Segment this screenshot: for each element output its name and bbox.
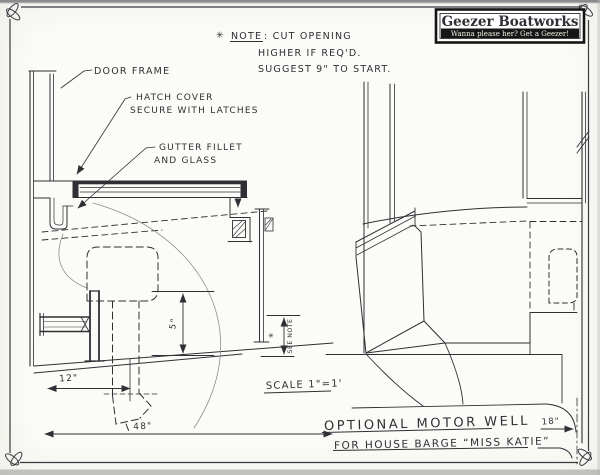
corner-posts — [364, 82, 395, 353]
perspective-view-right — [326, 82, 589, 464]
label-hatch-cover-1: HATCH COVER — [136, 93, 214, 103]
callout-labels: DOOR FRAME HATCH COVER SECURE WITH LATCH… — [94, 66, 259, 166]
dim-5in-label: 5" — [168, 317, 180, 330]
note-heading-rest: : CUT OPENING — [264, 31, 352, 42]
dimension-see-note — [261, 316, 300, 357]
dim-12in-label: 12" — [59, 373, 79, 384]
logo-block: Geezer Boatworks Wanna please her? Get a… — [436, 10, 584, 43]
well-transom-panels — [356, 232, 530, 353]
note-block: ✳ NOTE : CUT OPENING HIGHER IF REQ'D. SU… — [216, 31, 392, 75]
dim-see-note-star: ✳ — [268, 332, 275, 340]
gutter-channel-left — [50, 198, 73, 229]
dim-see-note-label: SEE NOTE — [287, 319, 294, 354]
motor-pad-hidden — [530, 222, 577, 343]
hull-corner-round — [538, 398, 577, 464]
scale-note: SCALE 1"=1' — [264, 378, 343, 393]
logo-tagline: Wanna please her? Get a Geezer! — [451, 30, 569, 38]
outboard-motor-dashed — [87, 247, 158, 434]
note-star: ✳ — [216, 31, 225, 41]
blueprint-drawing: Geezer Boatworks Wanna please her? Get a… — [0, 0, 600, 475]
note-line3: SUGGEST 9" TO START. — [258, 64, 392, 75]
title-line1: OPTIONAL MOTOR WELL — [324, 414, 530, 434]
scale-label: SCALE 1"=1' — [266, 378, 343, 392]
title-block: OPTIONAL MOTOR WELL FOR HOUSE BARGE “MIS… — [322, 414, 550, 452]
note-line2: HIGHER IF REQ'D. — [258, 48, 362, 59]
dim-48in-label: 48" — [133, 422, 153, 433]
label-door-frame: DOOR FRAME — [94, 66, 170, 77]
gutter-channel-right — [228, 198, 252, 243]
scanned-plan-sheet: Geezer Boatworks Wanna please her? Get a… — [0, 0, 600, 475]
label-hatch-cover-2: SECURE WITH LATCHES — [130, 106, 259, 116]
dimension-5in — [152, 292, 214, 356]
label-gutter-1: GUTTER FILLET — [159, 143, 243, 153]
stern-wall — [523, 92, 589, 443]
logo-title: Geezer Boatworks — [442, 14, 579, 30]
section-right-wall — [254, 209, 273, 342]
note-heading: NOTE — [231, 31, 262, 42]
dim-18in-label: 18" — [541, 416, 560, 427]
transom-mount — [40, 291, 104, 361]
deck-and-hull-lines — [326, 343, 562, 408]
label-gutter-2: AND GLASS — [154, 156, 217, 166]
